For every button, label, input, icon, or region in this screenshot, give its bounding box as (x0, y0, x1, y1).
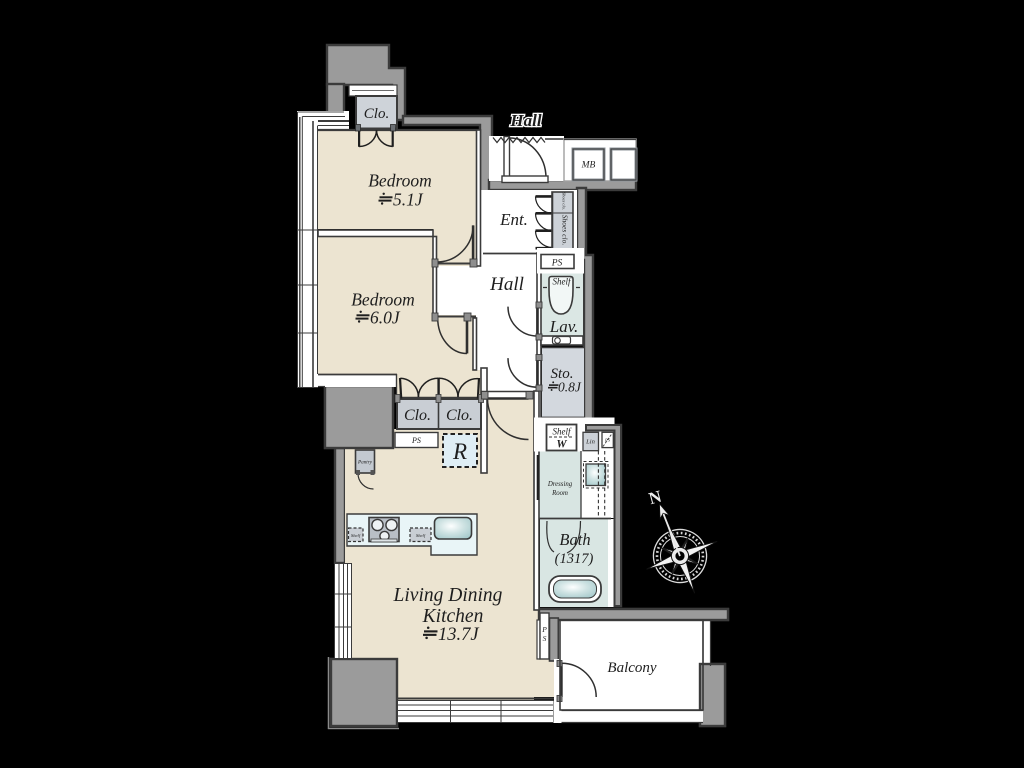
svg-text:Bedroom: Bedroom (368, 171, 432, 191)
svg-text:Room: Room (551, 490, 568, 497)
svg-text:Bath: Bath (559, 530, 590, 549)
svg-text:6.0J: 6.0J (370, 308, 401, 328)
svg-text:MB: MB (581, 161, 596, 171)
svg-text:W: W (556, 439, 567, 451)
svg-text:Clo.: Clo. (446, 407, 473, 424)
svg-text:Shoes clo.: Shoes clo. (561, 215, 570, 246)
svg-text:Living Dining: Living Dining (393, 585, 503, 606)
svg-text:Lin: Lin (585, 439, 595, 446)
svg-text:Dressing: Dressing (547, 481, 573, 488)
svg-text:PS: PS (551, 259, 563, 269)
svg-text:Lav.: Lav. (549, 317, 579, 336)
svg-text:Clo.: Clo. (364, 106, 389, 122)
svg-text:Hall: Hall (509, 111, 541, 130)
svg-text:Shelf: Shelf (351, 533, 361, 538)
svg-text:P: P (541, 625, 547, 634)
svg-text:Shelf: Shelf (553, 427, 572, 437)
svg-text:Pantry: Pantry (357, 460, 373, 466)
svg-text:S: S (543, 634, 547, 643)
svg-text:Shoes clo.: Shoes clo. (562, 192, 567, 210)
svg-text:5.1J: 5.1J (393, 190, 424, 210)
svg-text:Hall: Hall (489, 274, 524, 295)
svg-text:Ent.: Ent. (499, 210, 528, 229)
svg-text:PS: PS (411, 436, 421, 445)
svg-text:R: R (452, 439, 467, 464)
svg-text:Clo.: Clo. (404, 407, 431, 424)
svg-text:(1317): (1317) (555, 551, 594, 567)
svg-text:Kitchen: Kitchen (422, 606, 484, 627)
svg-text:Balcony: Balcony (607, 660, 656, 676)
svg-text:Bedroom: Bedroom (351, 290, 415, 310)
svg-text:13.7J: 13.7J (438, 625, 479, 645)
svg-text:Shelf: Shelf (553, 277, 572, 287)
svg-text:Shelf: Shelf (416, 533, 426, 538)
svg-text:PS: PS (604, 438, 611, 443)
svg-text:0.8J: 0.8J (558, 380, 582, 395)
